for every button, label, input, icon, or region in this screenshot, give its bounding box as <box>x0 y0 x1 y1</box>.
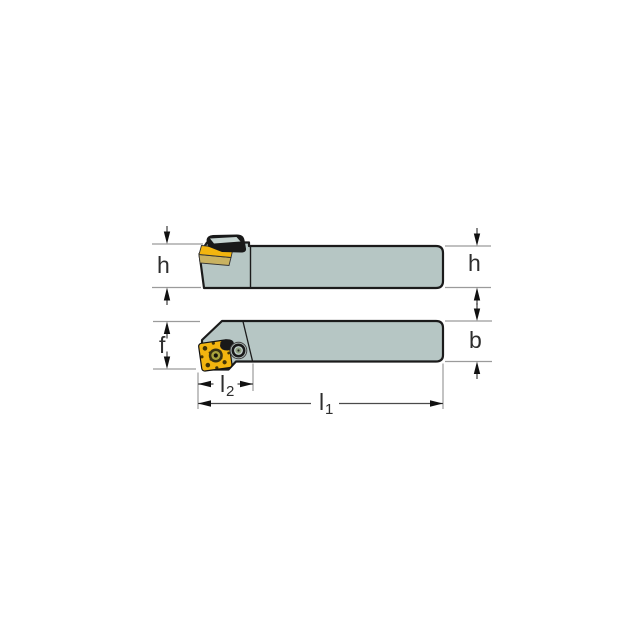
label-l2-sub: 2 <box>226 383 234 400</box>
label-b: b <box>469 327 482 353</box>
label-l1-main: l <box>319 389 324 415</box>
label-l1-sub: 1 <box>325 401 333 418</box>
clamp-screw-dot <box>237 349 239 351</box>
drawing-canvas: h h f b l 2 l 1 <box>0 0 640 640</box>
label-l2-main: l <box>220 371 225 397</box>
side-view <box>199 235 443 289</box>
tool-holder-diagram: h h f b l 2 l 1 <box>0 0 640 640</box>
insert-center-hole-core <box>214 353 218 357</box>
label-h-right: h <box>468 250 481 276</box>
label-h-left: h <box>157 252 170 278</box>
plan-view <box>198 321 443 372</box>
label-f: f <box>159 332 166 358</box>
